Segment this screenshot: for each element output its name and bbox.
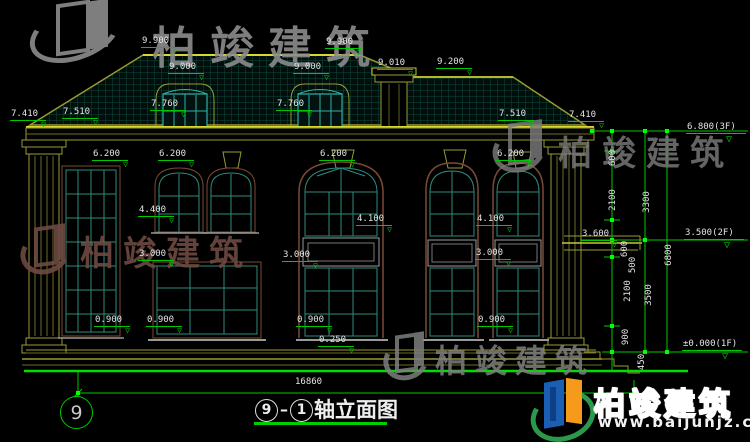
column-right (544, 140, 588, 353)
dim-label: 3.000 (475, 248, 511, 260)
dim-label: 6.200 (158, 149, 194, 161)
dim-label: 7.760 (276, 99, 312, 111)
dim-label: 4.100 (356, 214, 392, 226)
title-dash: – (280, 398, 288, 422)
dim-label: 7.510 (62, 107, 98, 119)
dim-label: 3.500(2F) (684, 228, 744, 240)
cornice (26, 127, 594, 140)
column-left (22, 140, 66, 353)
dim-label-vertical: 6800 (664, 240, 674, 270)
dim-label: 16860 (294, 377, 330, 388)
window-wide-1f (148, 262, 266, 340)
dim-label-vertical: 450 (637, 347, 647, 377)
dim-label: 6.200 (92, 149, 128, 161)
figure-title-text: 轴立面图 (314, 398, 398, 422)
axis-end-bubble: 1 (290, 399, 313, 422)
title-underline (254, 422, 387, 425)
dim-label: 3.000 (138, 249, 174, 261)
dim-label: 6.800(3F) (686, 122, 746, 134)
dim-label: 7.410 (568, 110, 604, 122)
dim-label: 6.200 (319, 149, 355, 161)
dim-label: 7.510 (498, 109, 534, 121)
dim-label: 9.900 (141, 36, 177, 48)
cad-elevation-screenshot: 柏竣建筑 www.baijunjz.com 柏竣建筑 www.baijunjz.… (0, 0, 750, 442)
logo-building-icon (550, 387, 556, 421)
dim-label-vertical: 3300 (642, 187, 652, 217)
dim-label: ±0.000(1F) (682, 339, 742, 351)
dim-label: 4.100 (476, 214, 512, 226)
logo-building-icon (566, 378, 582, 424)
dim-label: 3.000 (282, 250, 318, 262)
brand-logo[interactable]: 柏竣建筑 www.baijunjz.com (528, 377, 750, 442)
dim-label: 9.900 (325, 37, 361, 49)
base-plinth (22, 350, 688, 371)
dim-label: 9.010 (377, 58, 413, 70)
dim-label: 0.900 (296, 315, 332, 327)
logo-brand-url: www.baijunjz.com (598, 413, 750, 431)
dim-label: 3.600 (581, 229, 617, 241)
dim-label: 9.000 (168, 62, 204, 74)
dim-label: 0.250 (318, 335, 354, 347)
dim-label-vertical: 900 (621, 322, 631, 352)
dim-label: 0.900 (146, 315, 182, 327)
dim-label: 6.200 (496, 149, 532, 161)
window-arch-pair-2f (151, 168, 259, 233)
dim-label: 9.200 (436, 57, 472, 69)
dim-label: 0.900 (94, 315, 130, 327)
window-tall-left (58, 166, 124, 338)
dim-label-vertical: 2100 (623, 276, 633, 306)
dim-label: 0.900 (477, 315, 513, 327)
dim-label: 7.760 (150, 99, 186, 111)
dim-label: 7.410 (10, 109, 46, 121)
dim-label-vertical: 3500 (644, 280, 654, 310)
axis-grid-bubble-9: 9 (60, 396, 93, 429)
dim-label-vertical: 2100 (608, 185, 618, 215)
keystone-ornaments (223, 150, 531, 168)
dim-label: 9.000 (293, 62, 329, 74)
axis-start-bubble: 9 (255, 399, 278, 422)
dim-label: 4.400 (138, 205, 174, 217)
figure-title: 9 – 1 轴立面图 (254, 398, 398, 422)
dim-label-vertical: 600 (608, 143, 618, 173)
